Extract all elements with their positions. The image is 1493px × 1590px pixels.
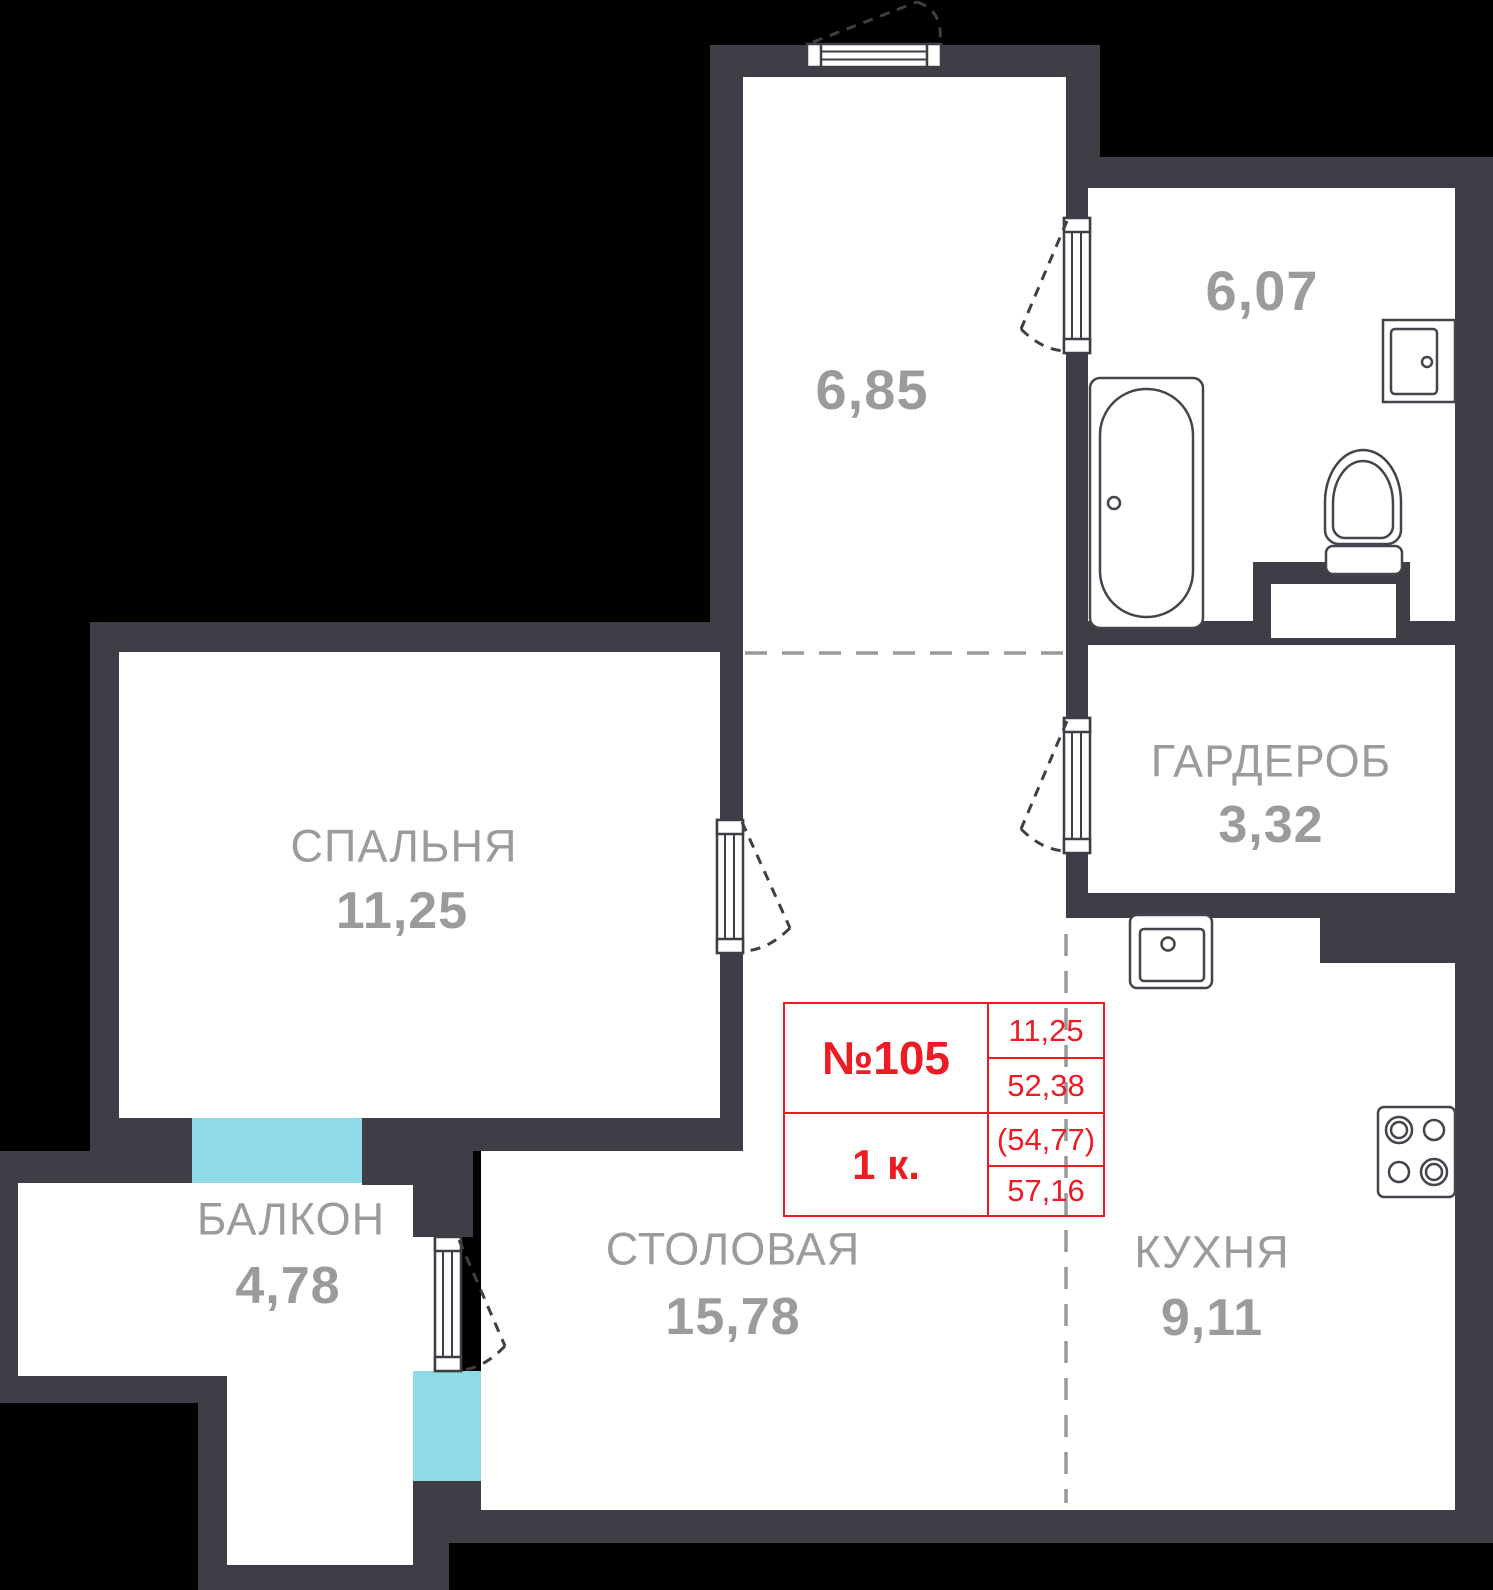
floor-plan-drawing — [0, 0, 1493, 1590]
bathtub-icon — [1090, 378, 1203, 628]
unit-area-with-coeff: (54,77) — [989, 1114, 1103, 1167]
hallway-area-label: 6,85 — [816, 362, 929, 418]
balcony-floor-lower — [227, 1376, 436, 1565]
kitchen-sink-icon — [1130, 915, 1212, 988]
dining-area-label: 15,78 — [665, 1291, 800, 1343]
bathroom-sink-icon — [1383, 320, 1455, 402]
bathroom-area-label: 6,07 — [1206, 263, 1319, 319]
unit-info-table: №105 1 к. 11,25 52,38 (54,77) 57,16 — [783, 1002, 1105, 1217]
bedroom-name-label: СПАЛЬНЯ — [291, 824, 518, 869]
wardrobe-name-label: ГАРДЕРОБ — [1151, 739, 1391, 784]
balcony-area-label: 4,78 — [235, 1260, 340, 1312]
dining-balcony-window — [413, 1371, 481, 1481]
kitchen-floor — [1066, 918, 1455, 1510]
balcony-name-label: БАЛКОН — [197, 1197, 385, 1242]
vent-shaft-opening — [1271, 584, 1396, 638]
dining-name-label: СТОЛОВАЯ — [606, 1227, 861, 1272]
unit-living-area: 11,25 — [989, 1004, 1103, 1059]
toilet-icon — [1325, 450, 1402, 574]
unit-area-main: 52,38 — [989, 1059, 1103, 1114]
entrance-door-icon — [807, 2, 941, 67]
kitchen-name-label: КУХНЯ — [1134, 1230, 1289, 1275]
floor-plan: 6,85 6,07 ГАРДЕРОБ 3,32 СПАЛЬНЯ 11,25 БА… — [0, 0, 1493, 1590]
hallway-floor — [743, 77, 1066, 1151]
kitchen-area-label: 9,11 — [1161, 1292, 1263, 1344]
unit-area-total: 57,16 — [989, 1167, 1103, 1215]
bedroom-area-label: 11,25 — [336, 885, 468, 937]
stove-icon — [1378, 1107, 1455, 1197]
unit-number: №105 — [785, 1004, 989, 1114]
bedroom-balcony-window — [192, 1118, 362, 1183]
wardrobe-area-label: 3,32 — [1218, 799, 1323, 851]
unit-type: 1 к. — [785, 1114, 989, 1215]
